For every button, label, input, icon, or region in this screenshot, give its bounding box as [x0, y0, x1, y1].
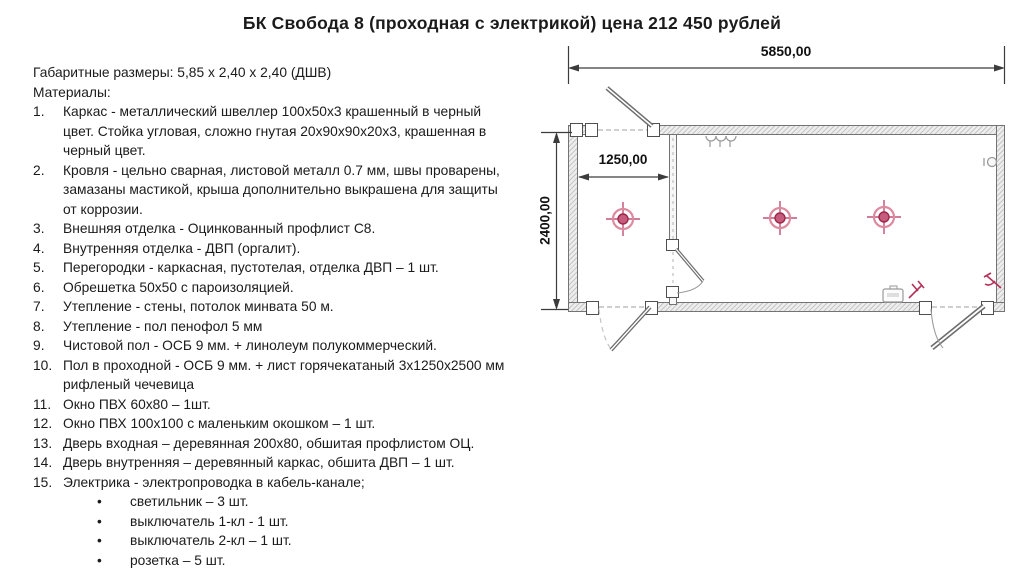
wall-top-main-segment — [659, 125, 1005, 135]
dimension-height-label: 2400,00 — [538, 185, 553, 257]
electric-item: выключатель 2-кл – 1 шт. — [33, 531, 511, 551]
electric-item: автомат на 16А - 1 шт. — [33, 570, 511, 574]
dimension-room-label: 1250,00 — [577, 152, 669, 167]
light-symbol — [606, 202, 640, 236]
electric-item: выключатель 1-кл - 1 шт. — [33, 512, 511, 532]
wall-bottom-main-segment — [657, 302, 924, 312]
jamb-post — [919, 301, 932, 315]
partition-door-leaf — [676, 249, 703, 293]
material-item: Перегородки - каркасная, пустотелая, отд… — [33, 258, 511, 278]
material-item: Внешняя отделка - Оцинкованный профлист … — [33, 219, 511, 239]
jamb-post — [645, 301, 658, 315]
partition-wall — [669, 134, 677, 243]
material-item: Кровля - цельно сварная, листовой металл… — [33, 161, 511, 220]
materials-list: Каркас - металлический швеллер 100х50х3 … — [33, 102, 511, 492]
light-symbol — [763, 201, 797, 235]
main-door-leaf — [931, 306, 984, 348]
material-item: Окно ПВХ 60х80 – 1шт. — [33, 395, 511, 415]
jamb-post — [981, 301, 994, 315]
spec-text-block: Габаритные размеры: 5,85 х 2,40 х 2,40 (… — [33, 63, 511, 574]
back-door-leaf — [599, 307, 650, 350]
light-symbol — [867, 200, 901, 234]
material-item: Обрешетка 50х50 с пароизоляцией. — [33, 278, 511, 298]
material-item: Чистовой пол - ОСБ 9 мм. + линолеум полу… — [33, 336, 511, 356]
jamb-post — [586, 301, 599, 315]
materials-heading: Материалы: — [33, 83, 511, 103]
electric-item: розетка – 5 шт. — [33, 551, 511, 571]
dimension-width-label: 5850,00 — [716, 43, 856, 59]
partition-door-jamb — [666, 286, 679, 298]
socket-symbol — [984, 158, 997, 167]
wall-right — [996, 125, 1005, 312]
jamb-post — [647, 123, 660, 137]
material-item: Дверь внутренняя – деревянный каркас, об… — [33, 453, 511, 473]
meter-box — [883, 286, 903, 302]
electrics-sublist: светильник – 3 шт.выключатель 1-кл - 1 ш… — [33, 492, 511, 574]
material-item: Внутренняя отделка - ДВП (оргалит). — [33, 239, 511, 259]
material-item: Электрика - электропроводка в кабель-кан… — [33, 473, 511, 493]
entrance-door-leaf — [607, 88, 652, 126]
jamb-post — [585, 123, 598, 137]
window-vent-symbol — [706, 136, 736, 147]
overall-dimensions: Габаритные размеры: 5,85 х 2,40 х 2,40 (… — [33, 63, 511, 83]
material-item: Каркас - металлический швеллер 100х50х3 … — [33, 102, 511, 161]
spec-sheet-page: БК Свобода 8 (проходная с электрикой) це… — [0, 0, 1024, 574]
page-title: БК Свобода 8 (проходная с электрикой) це… — [0, 13, 1024, 34]
material-item: Дверь входная – деревянная 200х80, обшит… — [33, 434, 511, 454]
material-item: Окно ПВХ 100х100 с маленьким окошком – 1… — [33, 414, 511, 434]
switch-symbol — [909, 281, 924, 298]
electric-item: светильник – 3 шт. — [33, 492, 511, 512]
partition-door-jamb — [666, 239, 679, 251]
material-item: Утепление - пол пенофол 5 мм — [33, 317, 511, 337]
material-item: Пол в проходной - ОСБ 9 мм. + лист горяч… — [33, 356, 511, 395]
material-item: Утепление - стены, потолок минвата 50 м. — [33, 297, 511, 317]
jamb-post — [570, 123, 583, 137]
